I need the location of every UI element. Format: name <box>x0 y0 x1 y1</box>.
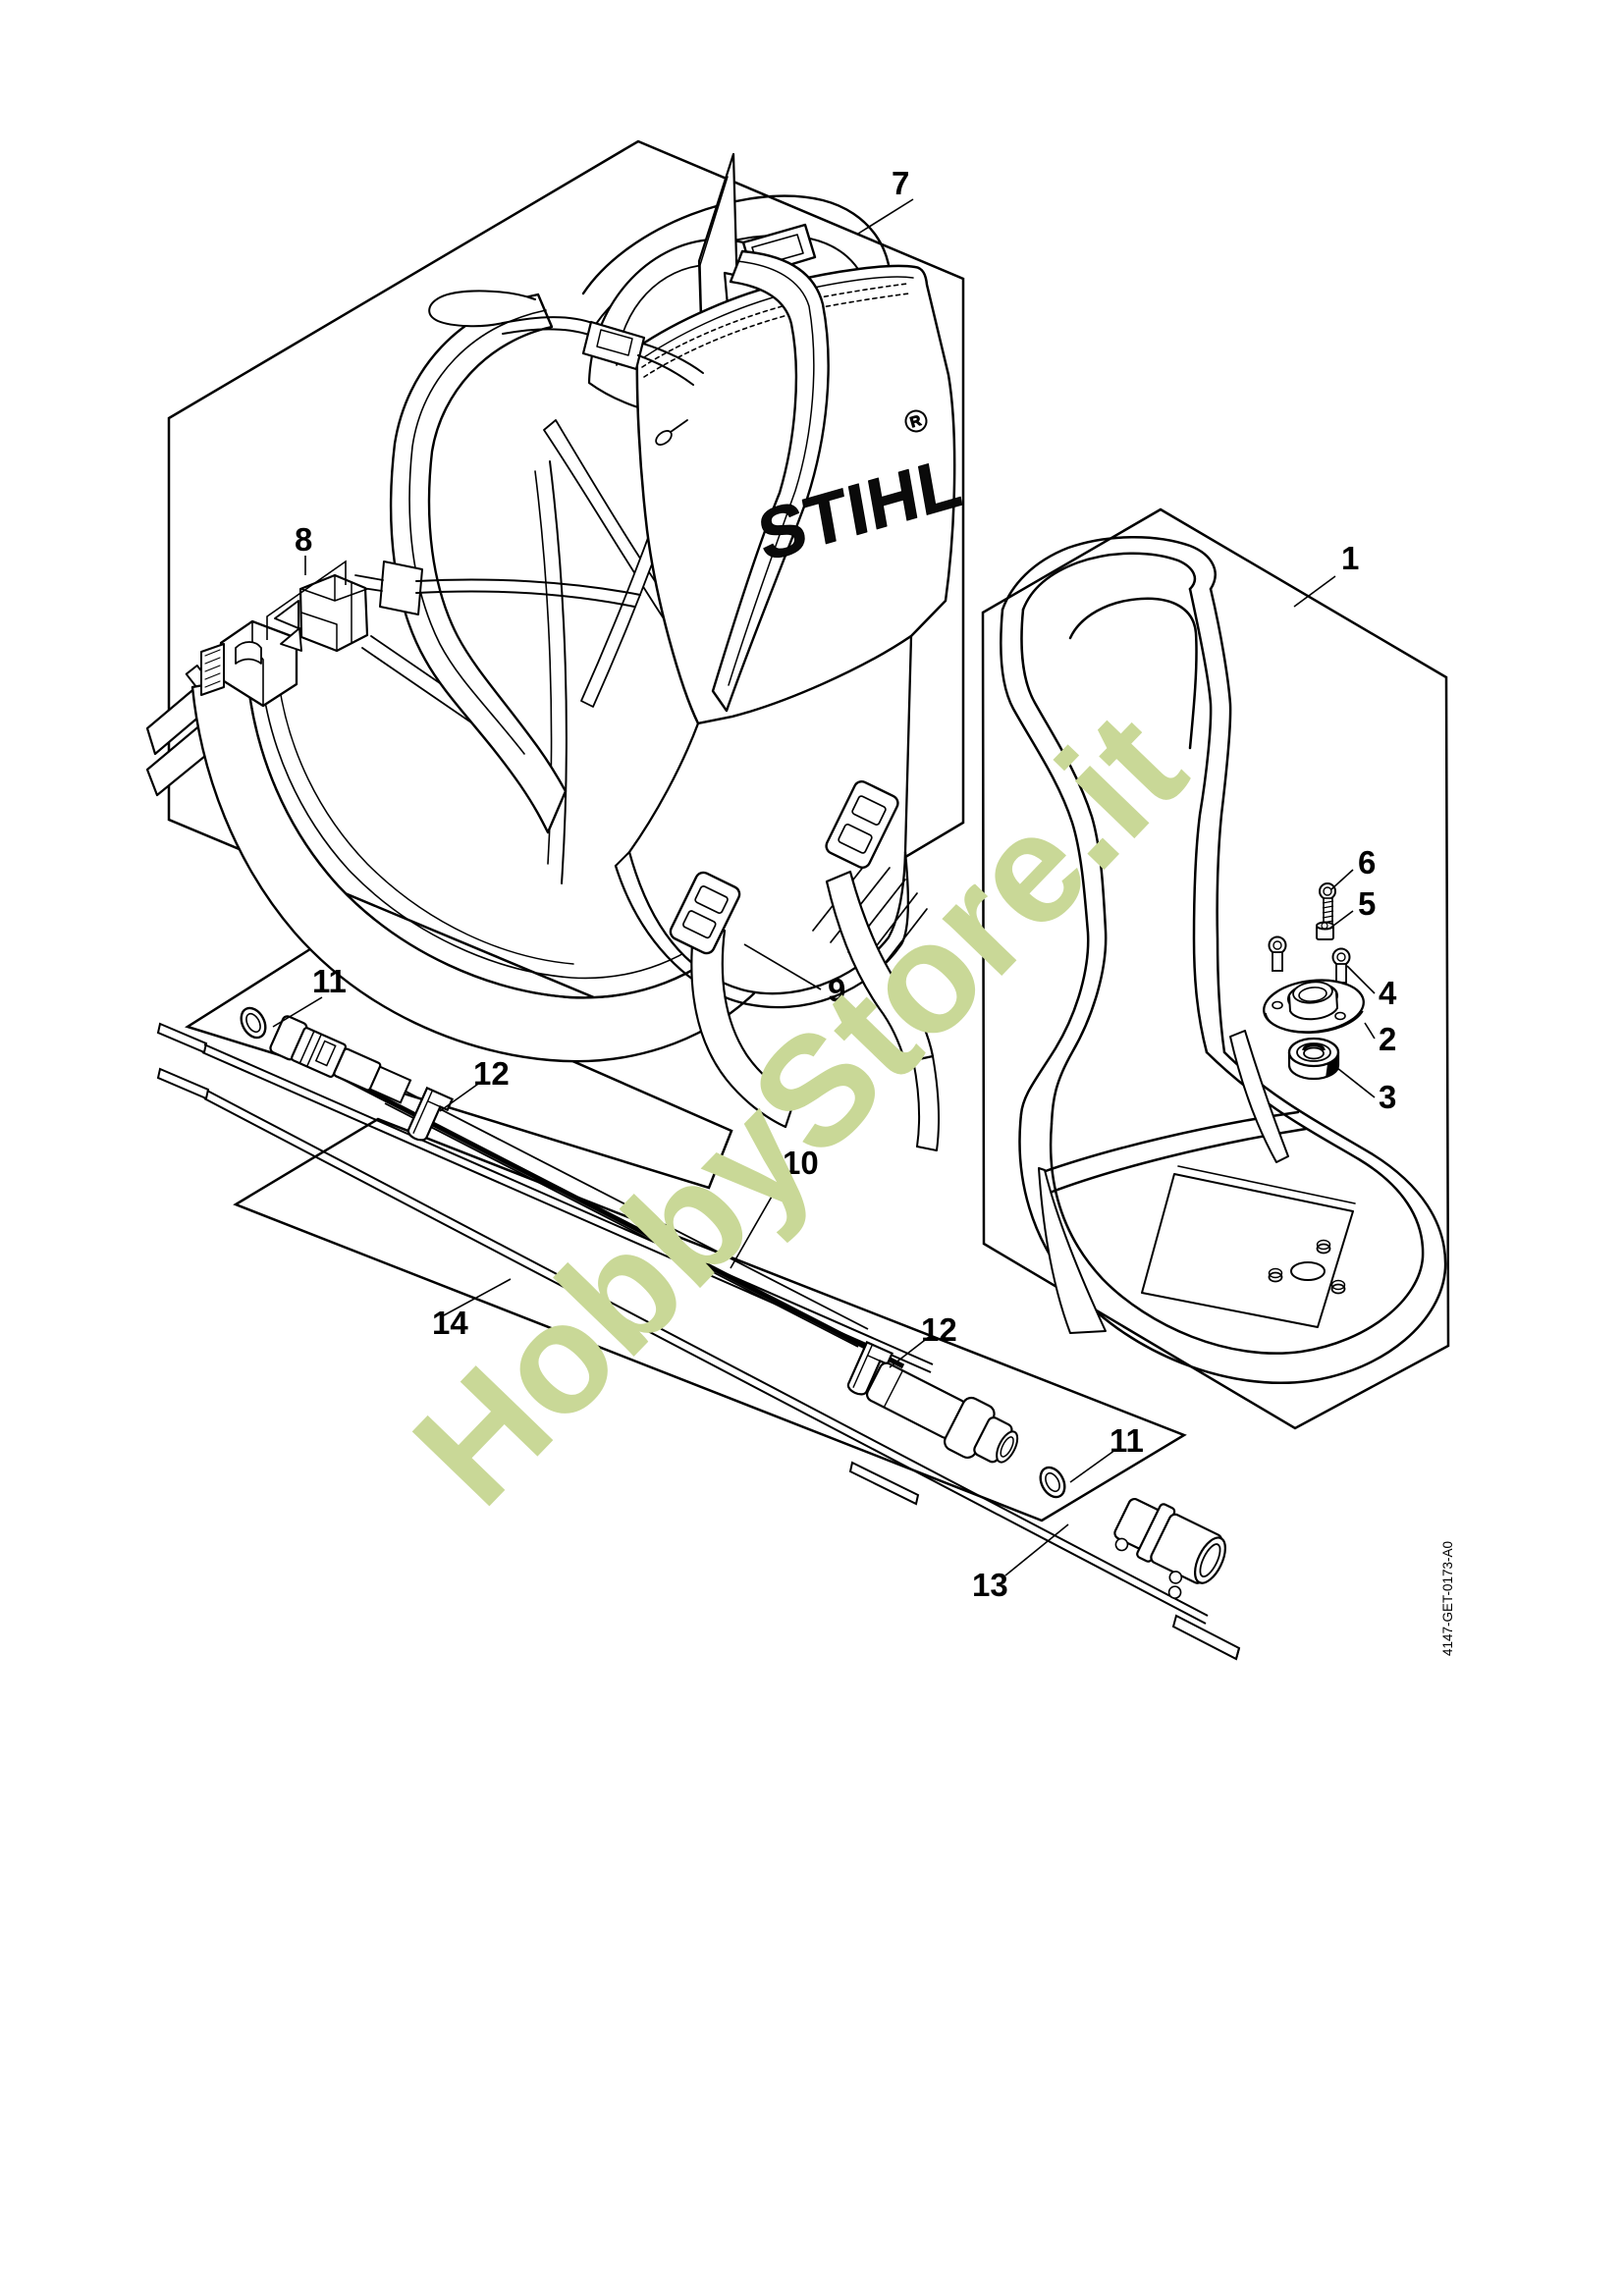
svg-text:4147-GET-0173-A0: 4147-GET-0173-A0 <box>1440 1541 1455 1656</box>
svg-text:5: 5 <box>1358 885 1376 922</box>
svg-text:8: 8 <box>295 521 312 558</box>
svg-text:6: 6 <box>1358 844 1376 881</box>
svg-text:12: 12 <box>921 1311 957 1348</box>
svg-text:1: 1 <box>1341 540 1359 576</box>
svg-text:7: 7 <box>892 165 909 201</box>
svg-text:2: 2 <box>1379 1021 1396 1057</box>
svg-text:11: 11 <box>312 963 347 999</box>
svg-text:11: 11 <box>1110 1422 1144 1459</box>
svg-text:12: 12 <box>473 1055 510 1092</box>
svg-text:13: 13 <box>972 1567 1008 1603</box>
svg-text:4: 4 <box>1379 975 1397 1011</box>
svg-text:3: 3 <box>1379 1079 1396 1115</box>
